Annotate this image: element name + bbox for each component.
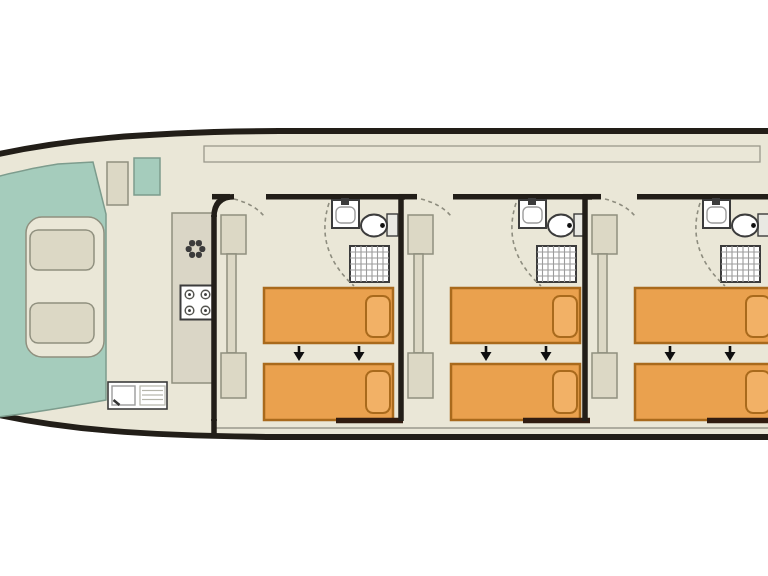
toilet-flush-dot bbox=[567, 223, 572, 228]
washbasin-bowl bbox=[707, 207, 726, 223]
pillow-bottom bbox=[366, 371, 390, 413]
toilet-flush-dot bbox=[751, 223, 756, 228]
pillow-bottom bbox=[553, 371, 577, 413]
wardrobe bbox=[221, 215, 246, 254]
toilet-cistern bbox=[758, 214, 768, 236]
galley-sink-icon bbox=[108, 382, 167, 409]
hob-burners-icon bbox=[181, 286, 215, 320]
shelf-partition bbox=[414, 254, 423, 353]
tap-icon bbox=[528, 198, 536, 205]
wardrobe bbox=[592, 215, 617, 254]
tap-icon bbox=[712, 198, 720, 205]
boat-deck-plan bbox=[0, 0, 768, 576]
seat-locker bbox=[408, 353, 433, 398]
helm-seat bbox=[107, 162, 128, 205]
washbasin-bowl bbox=[336, 207, 355, 223]
shelf-partition bbox=[227, 254, 236, 353]
deck-locker bbox=[134, 158, 160, 195]
shelf-partition bbox=[598, 254, 607, 353]
tap-icon bbox=[341, 198, 349, 205]
bow-cushion-bottom bbox=[30, 303, 94, 343]
pillow-top bbox=[366, 296, 390, 337]
pillow-top bbox=[746, 296, 768, 337]
seat-locker bbox=[592, 353, 617, 398]
deck-plan-canvas bbox=[0, 0, 768, 576]
seat-locker bbox=[221, 353, 246, 398]
washbasin-bowl bbox=[523, 207, 542, 223]
bow-cushion-top bbox=[30, 230, 94, 270]
toilet-cistern bbox=[387, 214, 398, 236]
pillow-bottom bbox=[746, 371, 768, 413]
pillow-top bbox=[553, 296, 577, 337]
toilet-flush-dot bbox=[380, 223, 385, 228]
wardrobe bbox=[408, 215, 433, 254]
